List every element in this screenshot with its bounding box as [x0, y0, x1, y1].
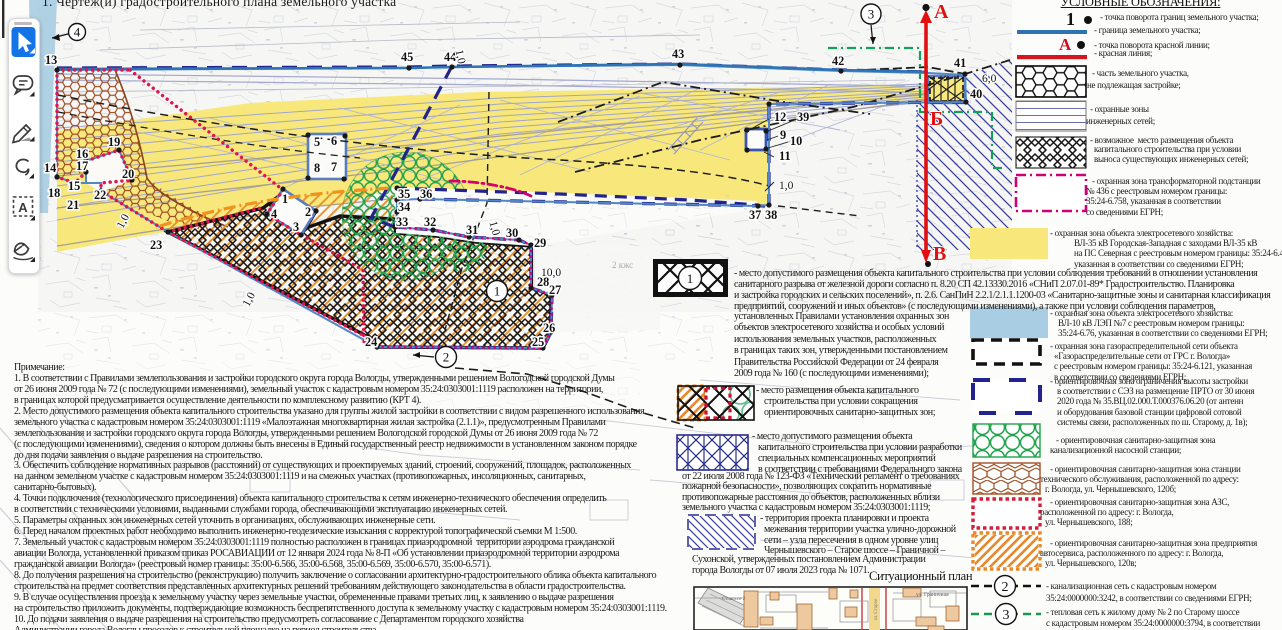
svg-text:2: 2 [1002, 580, 1009, 595]
svg-text:1: 1 [1066, 9, 1075, 29]
svg-text:ул. Граничная: ул. Граничная [916, 592, 949, 598]
svg-text:А: А [1059, 35, 1072, 54]
svg-text:A: A [18, 200, 28, 215]
svg-text:ш. Старое: ш. Старое [874, 598, 879, 620]
svg-text:Ст.шоссе 2: Ст.шоссе 2 [722, 597, 746, 602]
svg-text:3: 3 [1003, 608, 1010, 623]
